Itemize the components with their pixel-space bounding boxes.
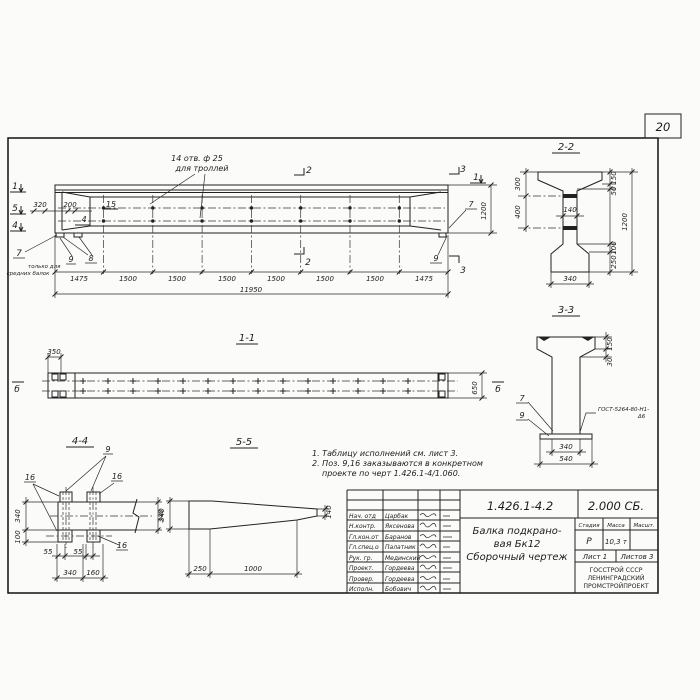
section-5-5-title: 5-5 <box>236 437 252 448</box>
section-4-4-title: 4-4 <box>72 436 88 447</box>
callout-8: 8 <box>88 254 93 263</box>
role-1: Н.контр. <box>349 523 376 530</box>
callout-16-left: 16 <box>25 473 35 482</box>
cut-label-3-bottom: 3 <box>460 266 466 276</box>
mass-value: 10,3 т <box>605 538 628 546</box>
callout-9-33: 9 <box>519 411 524 420</box>
detail-dim-lines <box>22 454 162 582</box>
product-title-2: вая Бк12 <box>494 539 541 550</box>
notes: 1. Таблицу исполнений см. лист 3. 2. Поз… <box>312 449 483 478</box>
section-5-5: 5-5 340 140 250 1000 <box>158 437 333 578</box>
dim-250: 250 <box>610 255 618 269</box>
name-3: Палатник <box>385 544 416 551</box>
elevation-view: 1 5 4 320 200 15 4 14 отв. ф 25 для трол… <box>7 154 497 298</box>
dim-55-a: 55 <box>44 548 53 556</box>
seg-dim-7: 1475 <box>415 275 433 283</box>
seg-dim-2: 1500 <box>168 275 186 283</box>
dim-200: 200 <box>63 201 77 209</box>
cut-label-3-top: 3 <box>460 165 466 175</box>
holes-note-line2: для троллей <box>175 164 229 173</box>
callout-16-bottom: 16 <box>117 541 127 550</box>
section-3-3-title: 3-3 <box>558 305 574 316</box>
role-7: Исполн. <box>349 586 374 593</box>
dim-30: 30 <box>606 357 614 366</box>
dim-340-left: 340 <box>14 509 22 523</box>
cut-label-2-bottom: 2 <box>305 258 311 268</box>
trolley-hole <box>151 206 154 209</box>
section-2-2-title: 2-2 <box>558 142 574 153</box>
dim-650: 650 <box>471 381 479 395</box>
seg-dim-1: 1500 <box>119 275 137 283</box>
section-2-2: 2-2 300 400 140 150 50 1200 100 250 340 <box>514 142 638 288</box>
dim-150-33: 150 <box>606 337 614 351</box>
col-scale: Масшт. <box>633 523 654 529</box>
product-title-3: Сборочный чертеж <box>466 551 567 563</box>
doc-number: 1.426.1-4.2 <box>487 499 553 513</box>
role-0: Нач. отд <box>349 513 376 520</box>
org-line-2: ЛЕНИНГРАДСКИЙ <box>587 573 644 582</box>
seg-dim-4: 1500 <box>267 275 285 283</box>
dim-100-44: 100 <box>14 530 22 544</box>
role-5: Проект. <box>349 565 374 572</box>
cut-label-1: 1 <box>12 182 18 192</box>
org-line-1: ГОССТРОЙ СССР <box>590 565 643 574</box>
b-marker-left: б <box>14 385 20 395</box>
trolley-hole <box>398 219 401 222</box>
role-6: Провер. <box>349 576 374 583</box>
note-7-line2: средних балок <box>7 271 51 277</box>
section-2-2-centerlines <box>518 196 563 228</box>
seg-dim-6: 1500 <box>366 275 384 283</box>
dim-140-55: 140 <box>325 505 333 519</box>
dim-340-33: 340 <box>559 443 573 451</box>
name-6: Гордеева <box>385 576 415 583</box>
trolley-hole <box>348 219 351 222</box>
doc-series: 2.000 СБ. <box>588 499 644 513</box>
section-3-3-profile <box>537 337 595 439</box>
holes-note-line1: 14 отв. ф 25 <box>171 154 223 163</box>
callout-9-right: 9 <box>433 254 438 263</box>
dim-340-bottom: 340 <box>63 569 77 577</box>
cut-label-5: 5 <box>12 204 18 214</box>
cut-label-4-small: 4 <box>81 215 86 224</box>
dim-55-b: 55 <box>74 548 83 556</box>
anchor-detail-outline <box>58 492 139 542</box>
dim-1200-sec: 1200 <box>621 213 629 231</box>
dim-total-11950: 11950 <box>240 286 263 294</box>
weld-note-line1: ГОСТ-5264-80-Н1- <box>598 407 649 413</box>
decor-line <box>80 378 411 394</box>
cut-label-2-top: 2 <box>306 166 312 176</box>
sheet-count: Лист 1 <box>582 553 607 561</box>
callout-7-33: 7 <box>519 394 525 403</box>
name-1: Яксенова <box>384 523 415 530</box>
cut-label-4: 4 <box>12 221 18 231</box>
callout-7: 7 <box>16 249 22 259</box>
detail-centerlines <box>46 487 152 548</box>
name-5: Гордеева <box>385 565 415 572</box>
product-title-1: Балка подкрано- <box>472 526 561 537</box>
section-1-1: 1-1 350 650 б б <box>12 333 504 398</box>
callout-9: 9 <box>68 255 73 264</box>
name-2: Баранов <box>385 534 412 541</box>
crane-beam-drawing: 20 1 5 4 320 200 15 4 14 отв. ф 25 для т… <box>0 0 700 700</box>
callout-7-right: 7 <box>468 200 474 209</box>
section-4-4: 4-4 9 16 16 16 340 100 340 55 55 340 160 <box>14 436 165 582</box>
dim-540: 540 <box>559 455 573 463</box>
hidden-lines <box>63 492 96 542</box>
pos-15: 15 <box>106 200 116 209</box>
section-1-1-title: 1-1 <box>239 333 255 344</box>
dim-400: 400 <box>514 205 522 219</box>
trolley-hole <box>299 206 302 209</box>
callout-9-44: 9 <box>105 445 110 454</box>
dim-320: 320 <box>33 201 47 209</box>
plan-hole-crosses <box>80 378 411 394</box>
drawing-sheet: 20 1 5 4 320 200 15 4 14 отв. ф 25 для т… <box>0 0 700 700</box>
name-4: Мединский <box>385 555 421 562</box>
trolley-hole <box>348 206 351 209</box>
trolley-hole <box>200 219 203 222</box>
col-mass: Масса <box>607 523 625 529</box>
taper-plate-outline <box>189 501 317 529</box>
role-2: Гл.кон.от <box>349 534 379 541</box>
seg-dim-0: 1475 <box>70 275 88 283</box>
dim-1000: 1000 <box>244 565 262 573</box>
col-stage: Стадия <box>578 523 600 529</box>
callout-16-right: 16 <box>112 472 122 481</box>
weld-note-line2: Δ6 <box>637 414 646 420</box>
section-3-3: 3-3 150 30 340 540 7 9 ГОСТ-5264-80-Н1- … <box>516 305 649 468</box>
plan-outline <box>48 373 448 398</box>
trolley-hole <box>250 206 253 209</box>
dim-1200: 1200 <box>480 202 488 220</box>
note-7-line1: только для <box>28 264 61 270</box>
org-line-3: ПРОМСТРОЙПРОЕКТ <box>583 581 648 590</box>
section-2-2-profile <box>538 172 602 272</box>
dim-250: 250 <box>193 565 207 573</box>
plan-centerlines <box>42 381 458 391</box>
dim-300: 300 <box>514 177 522 191</box>
flange-chamfer-marks <box>538 337 594 341</box>
trolley-hole <box>299 219 302 222</box>
note-line-2: 2. Поз. 9,16 заказываются в конкретном <box>312 459 483 468</box>
b-marker-right: б <box>495 385 501 395</box>
sheets-total: Листов 3 <box>620 553 654 561</box>
trolley-hole <box>102 219 105 222</box>
role-4: Рук. гр. <box>349 555 373 562</box>
dim-340: 340 <box>563 275 577 283</box>
seg-dim-5: 1500 <box>316 275 334 283</box>
name-0: Царбак <box>385 513 409 520</box>
sheet-number: 20 <box>656 120 671 134</box>
title-block: 1.426.1-4.2 2.000 СБ. Балка подкрано- ва… <box>347 490 658 593</box>
dim-160: 160 <box>86 569 100 577</box>
dim-140: 140 <box>563 206 577 214</box>
trolley-hole <box>151 219 154 222</box>
trolley-hole <box>398 206 401 209</box>
name-7: Бобович <box>385 586 412 593</box>
role-3: Гл.спец.о <box>349 544 379 551</box>
stage-value: Р <box>586 537 592 547</box>
seg-dim-3: 1500 <box>218 275 236 283</box>
dim-350: 350 <box>47 348 61 356</box>
note-line-1: 1. Таблицу исполнений см. лист 3. <box>312 449 458 458</box>
trolley-hole <box>250 219 253 222</box>
cut-label-1-right: 1 <box>473 173 479 183</box>
dim-340-55: 340 <box>158 508 166 522</box>
note-line-3: проекте по черт 1.426.1-4/1.060. <box>322 469 460 478</box>
